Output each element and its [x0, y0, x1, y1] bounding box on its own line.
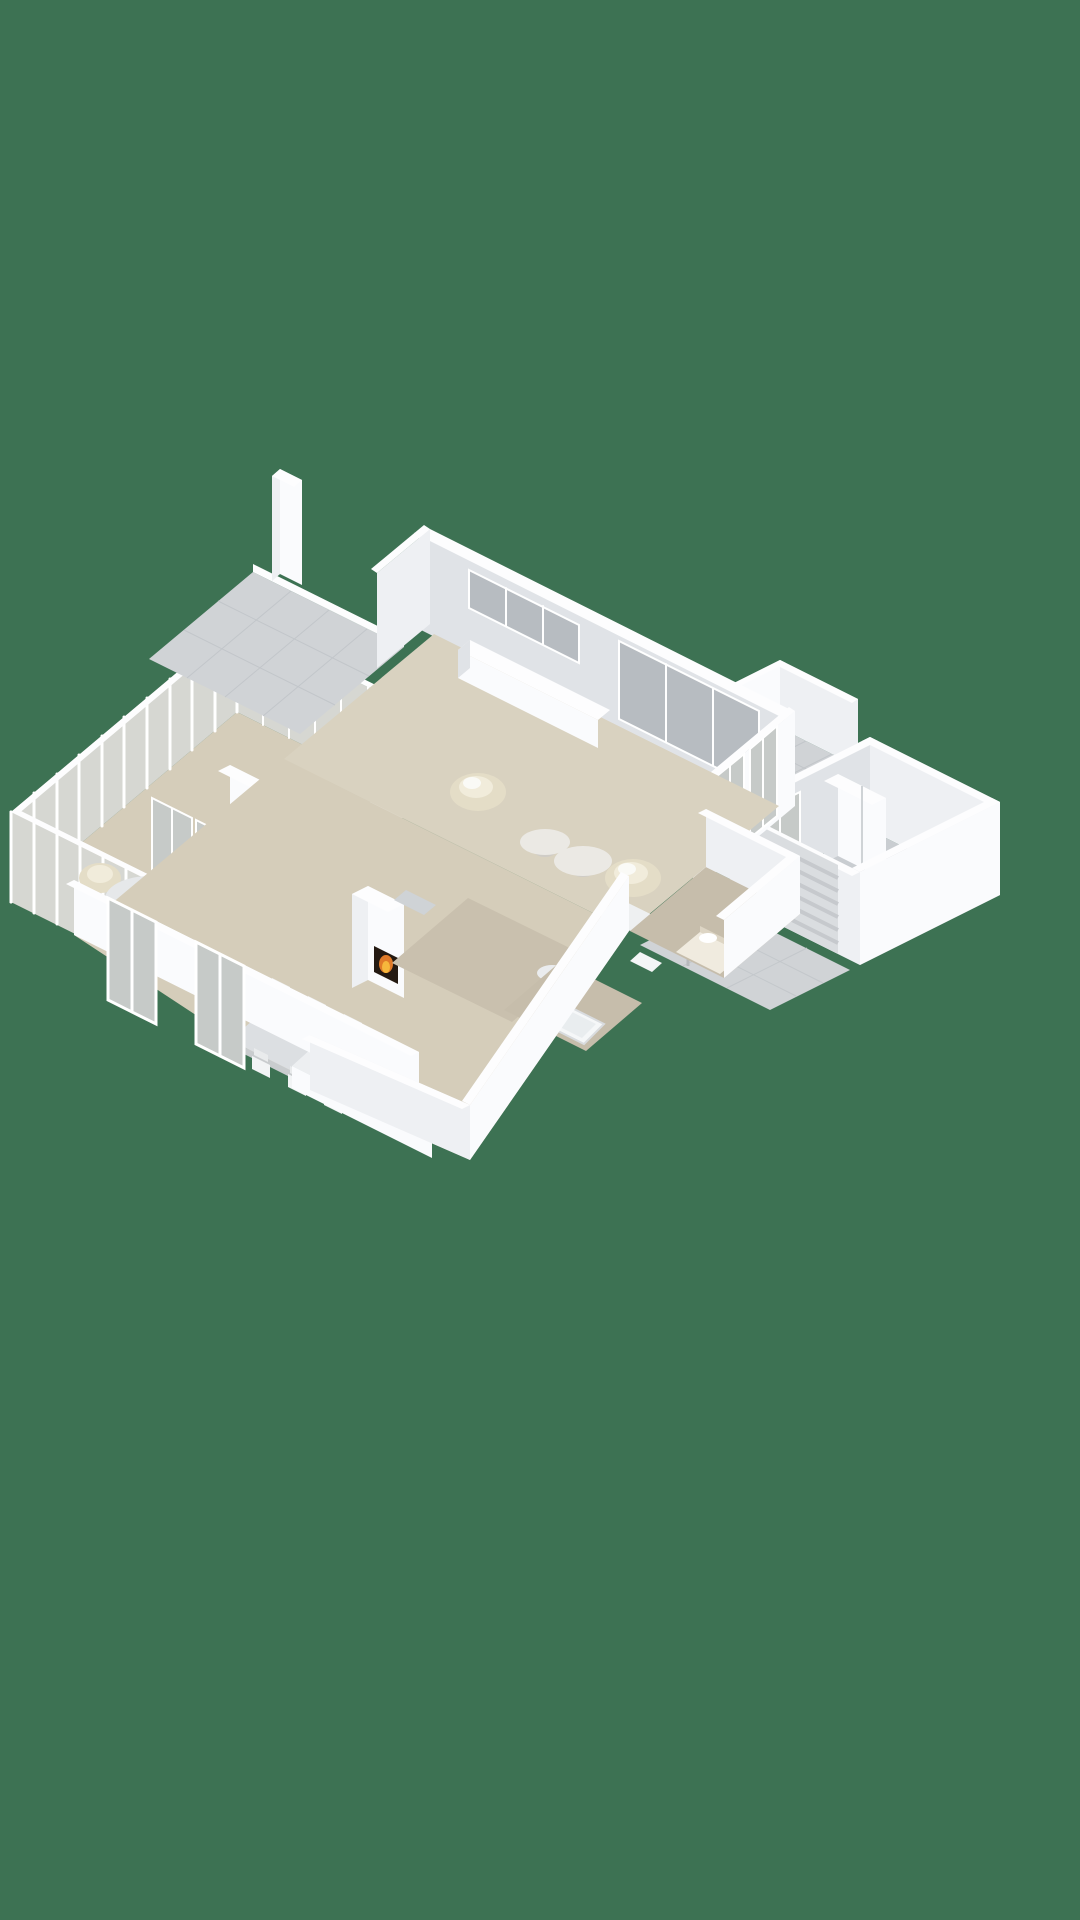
fire-flame-core — [382, 961, 390, 973]
coffee-table-2 — [554, 846, 612, 876]
wardrobe-side — [824, 774, 838, 863]
conservatory-chair-cushion — [87, 865, 113, 883]
chimney-face-sw — [272, 469, 280, 581]
chimney-face-se — [280, 469, 302, 585]
chimney — [272, 469, 302, 585]
armchair-1-pillow — [463, 777, 481, 789]
fireplace-side — [352, 886, 368, 988]
floor-plan-3d-render — [0, 0, 1080, 1920]
bed-pillow — [699, 933, 717, 943]
